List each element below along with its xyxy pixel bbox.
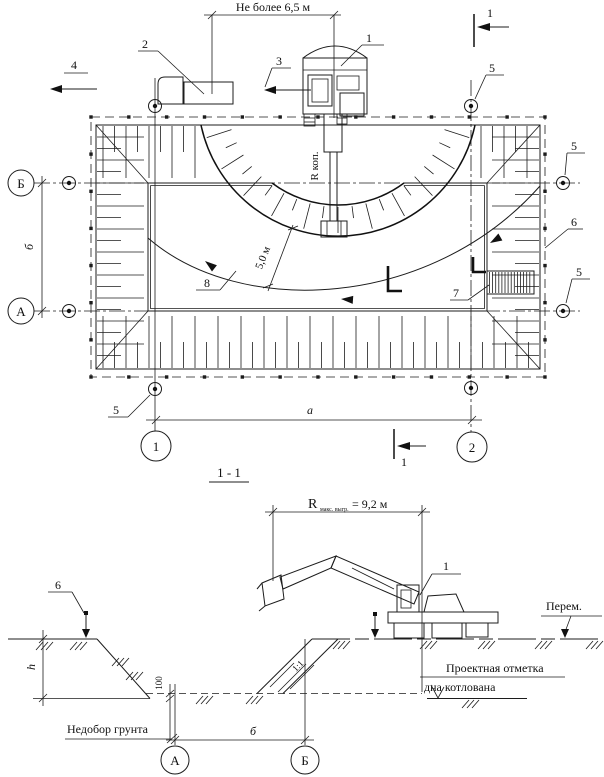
svg-text:3: 3 [276,54,282,68]
survey-points [63,100,570,396]
section-arrow-icon [397,442,410,450]
direction-arrow-icon [264,86,276,94]
dimension-top-label: Не более 6,5 м [236,0,311,14]
dimension-radius-section: R макс. выгр. = 9,2 м [265,497,430,692]
axis-bubble-1: 1 [141,431,171,461]
direction-arrow-icon [50,85,62,93]
callout-6-section: 6 [48,578,84,613]
bay-radial-hatching [207,130,469,233]
svg-text:б: б [250,724,257,738]
section-mark-top: 1 [474,6,509,47]
radius-prefix: R [308,497,318,512]
radius-subscript: макс. выгр. [320,507,349,513]
corner-mitre-br [487,311,540,369]
section-title: 1 - 1 [209,465,249,482]
svg-text:4: 4 [71,58,77,72]
callout-1-plan: 1 [341,31,384,66]
callout-5-right-upper: 5 [565,139,585,175]
movement-arrow-icon [341,295,354,304]
digging-front-arc [148,186,540,290]
pit-bottom-outline [148,183,487,311]
movement-arrow-icon [488,234,502,247]
dimension-top: Не более 6,5 м [204,0,341,94]
svg-text:1: 1 [366,31,372,45]
undercut-note: Недобор грунта [65,722,177,743]
drawing-sheet: R коп. Не более 6,5 м 1 2 3 4 1 [0,0,604,777]
callout-5-top: 5 [475,61,504,99]
svg-text:Б: Б [301,753,308,768]
slope-ratio-label: 1:1 [290,658,305,673]
excavation-scheme-drawing: R коп. Не более 6,5 м 1 2 3 4 1 [0,0,604,777]
svg-text:Проектная отметка: Проектная отметка [446,661,544,675]
excavator-counterweight [424,594,464,612]
dimension-arc-spacing: 5,0 м [253,225,298,291]
callout-4-direction: 4 [50,58,97,93]
radius-value: = 9,2 м [352,497,388,511]
svg-text:5: 5 [489,61,495,75]
arc-spacing-label: 5,0 м [253,245,273,271]
dimension-b-plan: б [22,176,46,318]
grade-stake-icon [82,611,90,638]
svg-text:1: 1 [443,559,449,573]
design-elevation-note: Проектная отметка дна котлована [420,661,565,698]
corner-mitre-tr [487,125,540,183]
bay-slope-bottom-arc [272,183,404,205]
svg-text:2: 2 [469,440,476,455]
svg-text:Перем.: Перем. [546,599,582,613]
grade-stake-icon [371,612,379,638]
axis-bubble-b-section: Б [291,746,319,774]
svg-text:8: 8 [204,276,210,290]
callout-1-section: 1 [420,559,461,595]
svg-text:Б: Б [17,176,24,191]
svg-text:А: А [170,753,180,768]
svg-text:5: 5 [571,139,577,153]
dimension-b-section: б [166,639,314,745]
svg-text:Недобор грунта: Недобор грунта [67,722,149,736]
svg-text:б: б [22,243,36,250]
movement-arrow-icon [203,258,217,272]
callout-6-plan: 6 [545,215,583,248]
svg-text:100: 100 [154,676,164,690]
dimension-100-undercut: 100 [154,676,175,745]
movement-label: Перем. [541,599,602,638]
dig-radius-label: R коп. [309,151,321,180]
axis-bubble-b: Б [8,170,34,196]
pit-left-slope [97,639,150,699]
corner-mitre-tl [96,125,148,183]
svg-text:a: a [307,403,313,417]
section-arrow-icon [477,23,490,31]
dimension-h: h [24,630,47,706]
svg-text:6: 6 [571,215,577,229]
dump-truck-plan [158,77,233,104]
svg-text:h: h [24,664,38,670]
dimension-a-plan: a [146,403,482,424]
svg-text:2: 2 [142,37,148,51]
svg-text:А: А [16,304,26,319]
berm-slope: 1:1 [257,639,338,694]
svg-text:7: 7 [453,286,459,300]
svg-text:1: 1 [401,455,407,469]
svg-text:1: 1 [153,439,160,454]
svg-text:5: 5 [576,265,582,279]
axis-bubble-a-section: А [161,746,189,774]
excavator-boom [331,556,419,604]
callout-7-plan: 7 [450,285,489,300]
svg-text:1: 1 [487,6,493,20]
callout-3-direction: 3 [264,54,311,94]
svg-text:1 - 1: 1 - 1 [217,465,241,480]
callout-5-bottom: 5 [108,395,150,417]
svg-text:5: 5 [113,403,119,417]
excavator-section [257,556,498,638]
callout-5-right-lower: 5 [566,265,590,303]
section-mark-bottom: 1 [394,429,426,469]
position-marker-l [473,257,486,272]
svg-text:6: 6 [55,578,61,592]
down-arrow-icon [561,629,569,638]
excavator-stick [280,556,336,589]
axis-bubble-a: А [8,298,34,324]
corner-mitre-bl [96,311,148,369]
callout-2-plan: 2 [138,37,204,94]
axis-bubble-2: 2 [457,432,487,462]
